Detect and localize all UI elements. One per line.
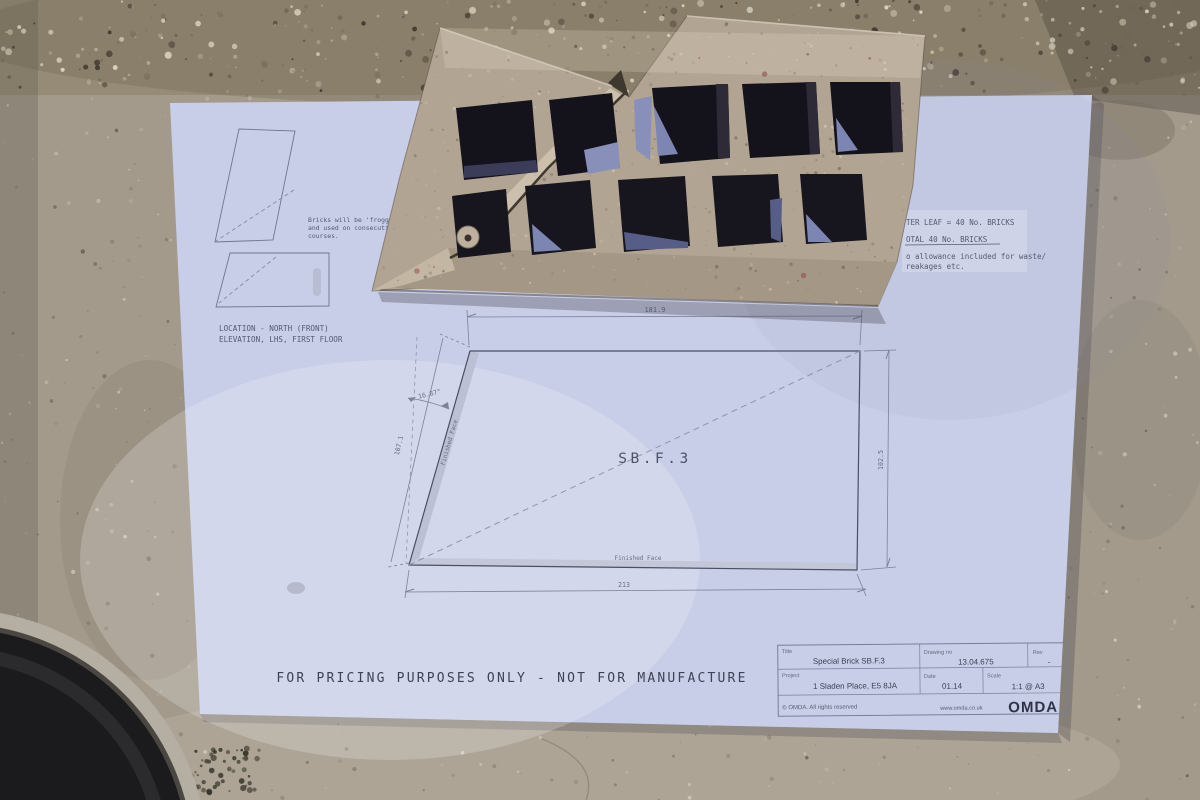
frog-note-line1: Bricks will be 'frogged' xyxy=(308,216,400,224)
brick xyxy=(372,16,925,324)
location-line1: LOCATION - NORTH (FRONT) xyxy=(219,324,329,333)
title-value: Special Brick SB.F.3 xyxy=(813,656,886,666)
scale-value: 1:1 @ A3 xyxy=(1012,682,1046,691)
copyright-text: © OMDA. All rights reserved xyxy=(782,704,857,712)
dimension-label-bottom: 213 xyxy=(618,581,630,589)
qty-line2: OTAL 40 No. BRICKS xyxy=(906,235,988,244)
paper-stain xyxy=(287,582,305,594)
photo-scene: Bricks will be 'frogged' and used on con… xyxy=(0,0,1200,800)
qty-line4: reakages etc. xyxy=(906,262,965,271)
title-label: Title xyxy=(782,649,792,655)
omda-logo: OMDA xyxy=(1008,699,1058,716)
rev-value: - xyxy=(1048,658,1051,667)
rev-label: Rev xyxy=(1033,650,1043,656)
date-value: 01.14 xyxy=(942,682,963,691)
website-text: www.omda.co.uk xyxy=(939,705,983,711)
qty-line3: o allowance included for waste/ xyxy=(906,252,1046,261)
footer-warning: FOR PRICING PURPOSES ONLY - NOT FOR MANU… xyxy=(276,671,747,686)
frog-note-line3: courses. xyxy=(308,232,339,240)
frog-note-line2: and used on consecutive xyxy=(308,224,397,232)
quantity-notes: TER LEAF = 40 No. BRICKS OTAL 40 No. BRI… xyxy=(902,210,1046,272)
core-fragment xyxy=(457,226,479,248)
finished-face-label-bottom: Finished Face xyxy=(615,555,662,562)
project-value: 1 Sladen Place, E5 8JA xyxy=(813,681,898,691)
paper-through-gap xyxy=(634,96,652,160)
project-label: Project xyxy=(782,673,800,679)
drawing-no-value: 13.04.675 xyxy=(958,657,994,666)
part-label: SB.F.3 xyxy=(618,451,691,467)
qty-line1: TER LEAF = 40 No. BRICKS xyxy=(906,218,1015,227)
paper-smudge xyxy=(313,268,321,296)
location-line2: ELEVATION, LHS, FIRST FLOOR xyxy=(219,335,343,344)
date-label: Date xyxy=(924,674,936,680)
brick-hole xyxy=(452,189,511,258)
dimension-label-right: 102.5 xyxy=(877,450,885,470)
drawing-no-label: Drawing no xyxy=(924,650,952,656)
scale-label: Scale xyxy=(987,673,1001,679)
